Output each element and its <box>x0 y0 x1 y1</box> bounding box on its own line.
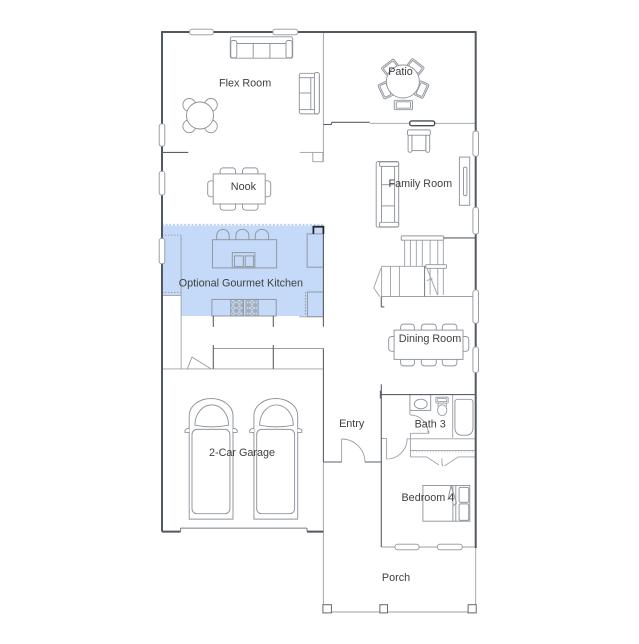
svg-text:Porch: Porch <box>382 572 410 584</box>
svg-text:Bath 3: Bath 3 <box>415 419 446 431</box>
svg-text:Flex Room: Flex Room <box>219 77 271 89</box>
svg-text:Dining Room: Dining Room <box>399 333 461 345</box>
svg-text:Patio: Patio <box>388 66 413 78</box>
svg-text:Entry: Entry <box>339 418 365 430</box>
svg-text:2-Car Garage: 2-Car Garage <box>209 447 275 459</box>
svg-text:Optional Gourmet Kitchen: Optional Gourmet Kitchen <box>179 278 303 290</box>
svg-text:Bedroom 4: Bedroom 4 <box>401 492 454 504</box>
svg-text:Nook: Nook <box>231 181 257 193</box>
svg-text:Family Room: Family Room <box>389 178 453 190</box>
